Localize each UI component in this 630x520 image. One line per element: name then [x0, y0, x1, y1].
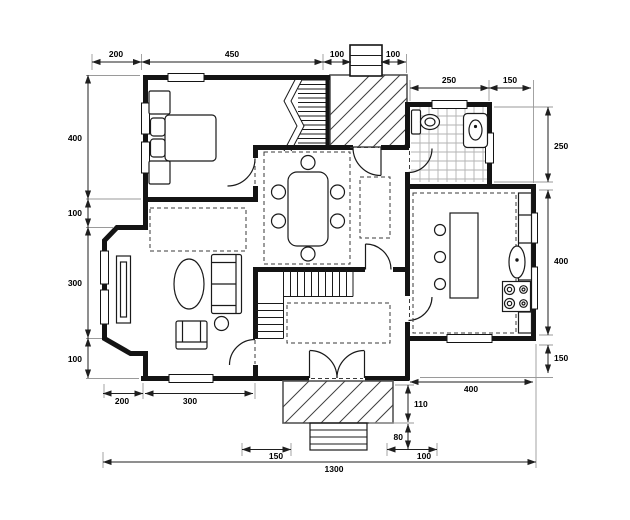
dim-label-left-2: 300	[68, 278, 82, 288]
console-table	[117, 256, 131, 323]
dining-table	[288, 172, 328, 246]
dim-label-bottom-left-1: 300	[183, 396, 197, 406]
coffee-table	[174, 259, 204, 309]
door-living-hall	[230, 340, 256, 366]
dim-label-top-2: 100	[330, 49, 344, 59]
window	[169, 375, 213, 383]
pillow	[151, 118, 166, 136]
dim-label-left-0: 400	[68, 133, 82, 143]
dim-label-bottom-right-0: 400	[464, 384, 478, 394]
dim-label-bath-top-1: 150	[503, 75, 517, 85]
upper-staircase	[284, 76, 327, 151]
kitchen-sink	[509, 246, 525, 278]
window	[101, 251, 109, 284]
floor-plan-page: 200 450 100 100 250 150 250 400 150 400 …	[0, 0, 630, 520]
bathroom-sink	[464, 114, 488, 148]
window	[432, 101, 467, 109]
door-dining-hall	[366, 244, 392, 270]
armchair	[176, 321, 207, 349]
nightstand	[149, 91, 170, 114]
door-bedroom	[228, 159, 256, 187]
dim-label-top-1: 450	[225, 49, 239, 59]
window	[168, 74, 204, 82]
dim-label-bottom-left-0: 200	[115, 396, 129, 406]
living-rug	[150, 208, 246, 251]
dim-label-porch-1: 80	[394, 432, 404, 442]
dim-label-right-1: 400	[554, 256, 568, 266]
bar-stools	[435, 225, 446, 290]
dim-label-left-1: 100	[68, 208, 82, 218]
kitchen-island	[450, 213, 478, 298]
cabinet-outline	[360, 177, 390, 238]
sofa	[212, 255, 242, 314]
floor-plan-canvas: 200 450 100 100 250 150 250 400 150 400 …	[0, 0, 630, 520]
dim-label-steps-1: 100	[417, 451, 431, 461]
door-terrace	[350, 148, 381, 176]
chimney	[350, 45, 382, 76]
stair-break-mask	[284, 76, 304, 151]
dim-label-total-width: 1300	[325, 464, 344, 474]
window	[447, 335, 492, 343]
stove	[503, 282, 531, 312]
hall-rug	[287, 303, 390, 343]
side-table	[215, 317, 229, 331]
dim-label-right-0: 250	[554, 141, 568, 151]
window	[101, 290, 109, 324]
entry-double-door	[310, 351, 365, 379]
window	[142, 142, 150, 173]
dim-label-bath-top-0: 250	[442, 75, 456, 85]
dim-label-top-3: 100	[386, 49, 400, 59]
pillow	[151, 139, 166, 157]
dim-label-right-2: 150	[554, 353, 568, 363]
hall-staircase	[255, 270, 353, 339]
dim-label-steps-0: 150	[269, 451, 283, 461]
door-kitchen	[409, 297, 433, 321]
bed	[151, 115, 217, 161]
dim-label-left-3: 100	[68, 354, 82, 364]
toilet	[412, 110, 440, 134]
dim-label-top-0: 200	[109, 49, 123, 59]
porch	[245, 360, 474, 445]
window	[142, 103, 150, 134]
entry-steps	[310, 423, 367, 450]
nightstand	[149, 161, 170, 184]
dim-label-porch-0: 110	[414, 399, 428, 409]
